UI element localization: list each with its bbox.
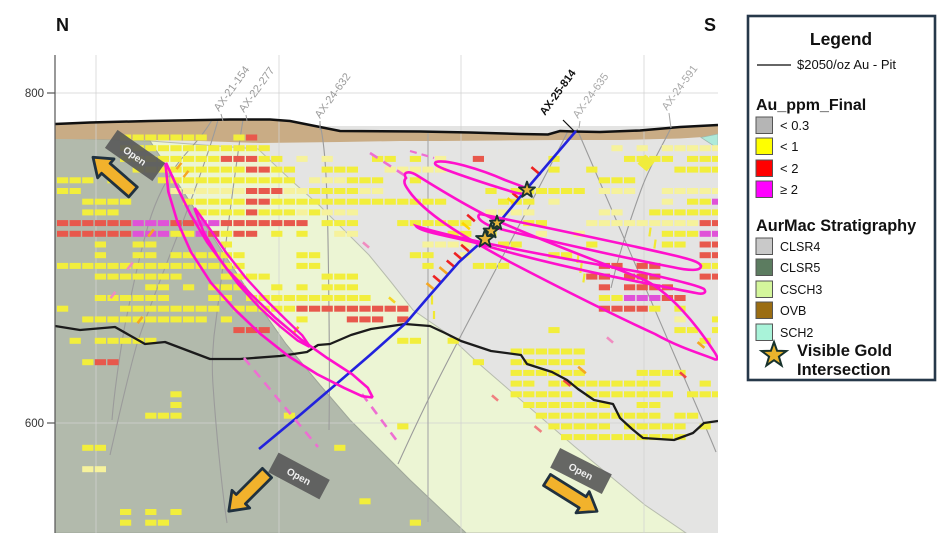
- svg-text:< 1: < 1: [780, 139, 798, 154]
- svg-text:600: 600: [25, 418, 44, 430]
- svg-text:CLSR4: CLSR4: [780, 240, 820, 254]
- svg-text:≥ 2: ≥ 2: [780, 182, 798, 197]
- svg-text:Au_ppm_Final: Au_ppm_Final: [756, 97, 866, 114]
- svg-text:< 0.3: < 0.3: [780, 118, 809, 133]
- svg-text:CLSR5: CLSR5: [780, 261, 820, 275]
- svg-text:S: S: [704, 15, 716, 35]
- svg-text:800: 800: [25, 88, 44, 100]
- svg-text:Legend: Legend: [810, 29, 872, 49]
- svg-text:< 2: < 2: [780, 161, 798, 176]
- svg-text:Visible Gold: Visible Gold: [797, 342, 892, 360]
- svg-text:$2050/oz Au - Pit: $2050/oz Au - Pit: [797, 57, 896, 72]
- svg-text:SCH2: SCH2: [780, 326, 813, 340]
- svg-text:OVB: OVB: [780, 304, 806, 318]
- svg-text:Intersection: Intersection: [797, 361, 891, 379]
- svg-text:CSCH3: CSCH3: [780, 283, 822, 297]
- svg-text:AurMac Stratigraphy: AurMac Stratigraphy: [756, 217, 916, 235]
- svg-text:N: N: [56, 15, 69, 35]
